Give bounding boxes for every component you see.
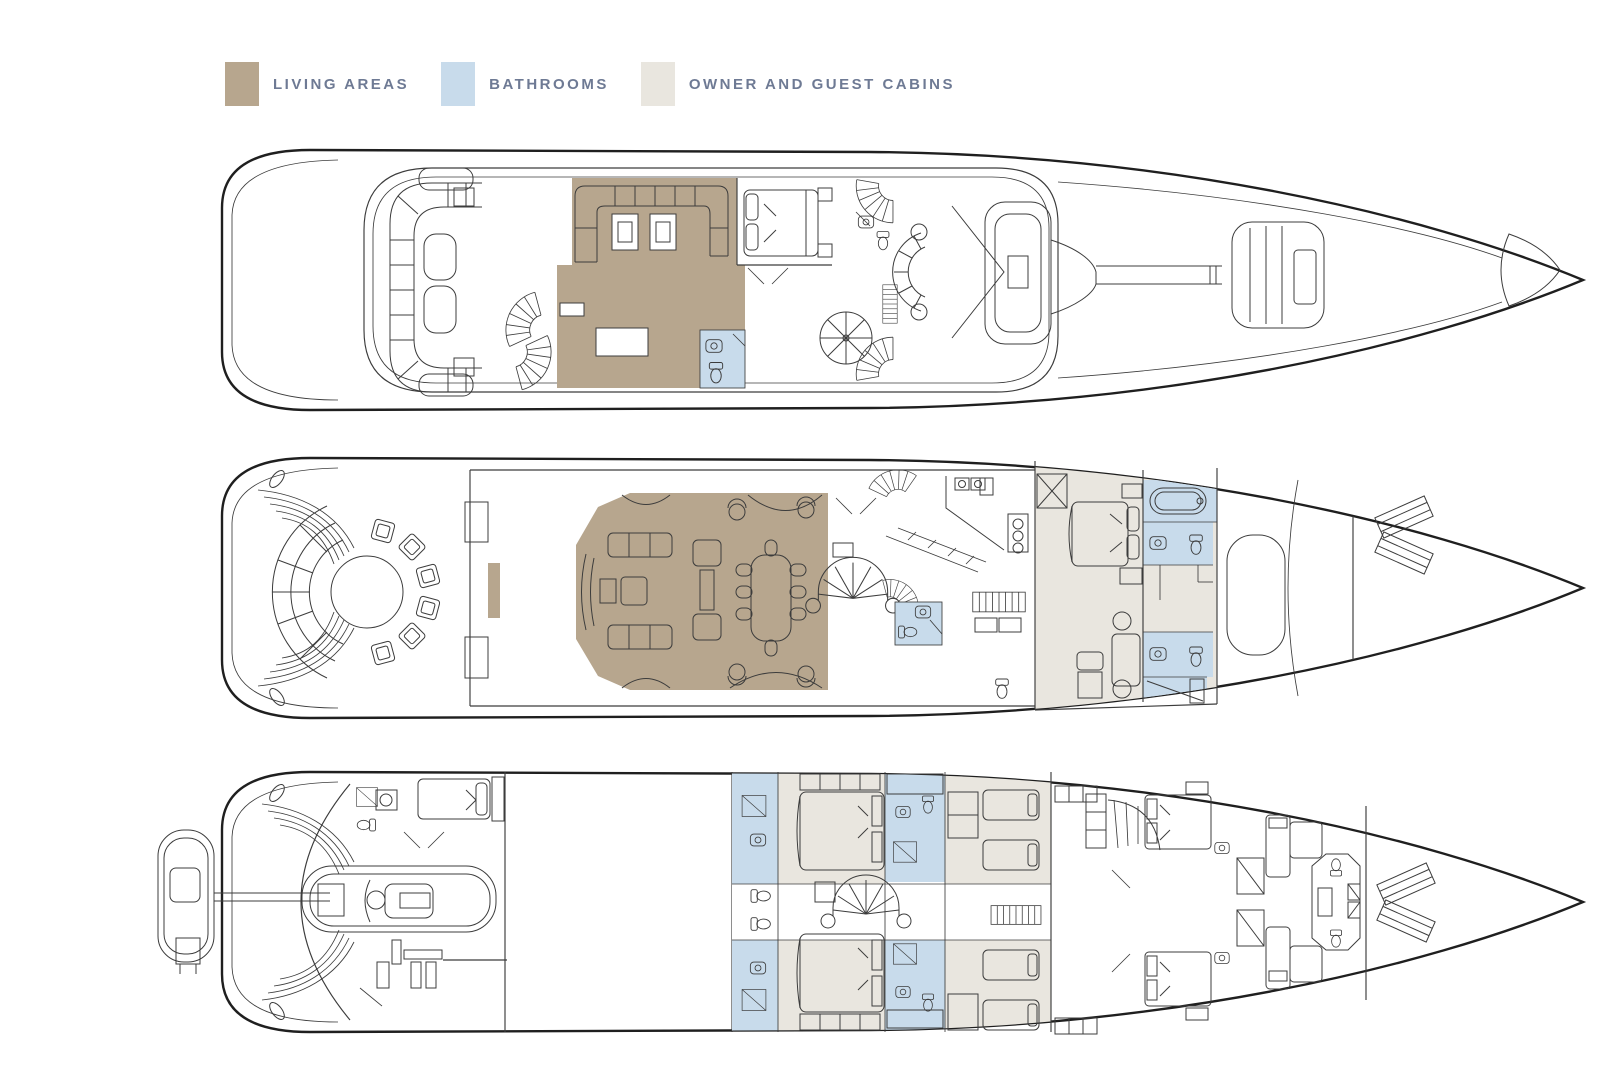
lower-deck-plan: [158, 772, 1583, 1034]
helm-seat: [911, 304, 927, 320]
main-stairs: [973, 592, 1025, 612]
toilet-icon: [1330, 930, 1341, 947]
windshield: [952, 206, 1004, 338]
shower-icon: [356, 788, 377, 807]
diagonal-stairs: [886, 528, 986, 572]
yacht-deck-plans-page: LIVING AREAS BATHROOMS OWNER AND GUEST C…: [0, 0, 1624, 1068]
cleat-icon: [267, 468, 287, 490]
helm-seat: [911, 224, 927, 240]
galley: [946, 476, 1028, 553]
bow-bulkhead-curve: [1288, 480, 1298, 696]
straight-stairs: [883, 285, 897, 323]
crew-bunk: [1145, 795, 1211, 849]
foredeck-walkway: [1051, 240, 1222, 314]
stern-sweep-stairs: [262, 804, 354, 1000]
owner-bath-zone: [1143, 522, 1213, 565]
cleat-icon: [267, 782, 287, 804]
crew-bunk: [1145, 952, 1211, 1006]
crew-quarters: [1055, 782, 1366, 1034]
aft-stair-fan-lower: [508, 329, 560, 396]
bow-sun-pad: [1377, 900, 1435, 942]
garage-transom-curve: [301, 784, 350, 1020]
toilet-icon: [357, 819, 375, 831]
crew-bed: [418, 779, 490, 819]
sun-deck-plan: [222, 150, 1583, 410]
main-deck-hull: [222, 458, 1583, 718]
tender-boat: [158, 830, 214, 974]
dining-chair: [371, 519, 395, 543]
bow-pad: [1501, 234, 1560, 306]
owner-bath2-zone: [1143, 632, 1213, 677]
cleat-icon: [267, 1000, 287, 1022]
aft-dining: [272, 506, 440, 678]
dining-chair: [398, 622, 426, 650]
round-dining-table: [331, 556, 403, 628]
dining-chair: [398, 533, 426, 561]
dining-chair: [416, 564, 440, 588]
guest-bath-zone-top: [885, 772, 945, 882]
aft-seating-bench: [390, 183, 482, 392]
stair-landing: [833, 543, 853, 557]
workshop: [360, 940, 507, 1006]
cleat-icon: [267, 686, 287, 708]
toilet-icon: [996, 679, 1009, 698]
helm-console: [893, 206, 1004, 338]
bow-locker: [1227, 535, 1285, 655]
radar-mast: [985, 202, 1051, 344]
sun-deck-bathroom: [700, 330, 745, 388]
bow-sun-pad: [1377, 863, 1435, 905]
day-head: [856, 212, 889, 250]
deck-plans-drawing: [0, 0, 1624, 1068]
sun-deck-hull: [222, 150, 1583, 410]
deck-locker: [465, 637, 488, 678]
aft-stair-fan-upper: [497, 286, 549, 353]
davit-crane: [214, 884, 344, 916]
stern-inner-line: [232, 782, 338, 1022]
stern-inner-line: [232, 468, 338, 708]
spiral-staircase-icon: [820, 312, 872, 364]
deck-locker: [465, 502, 488, 542]
salon-step: [488, 563, 500, 618]
toilet-icon: [1330, 859, 1341, 876]
stove: [1008, 514, 1028, 552]
dining-chair: [416, 596, 440, 620]
sun-deck-cabin: [737, 178, 832, 284]
bow-seating-module: [1232, 222, 1324, 328]
stair-fan-forward-port: [847, 170, 904, 231]
day-head-bathroom: [895, 602, 942, 645]
sink-icon: [1215, 842, 1229, 853]
toilet-icon: [877, 232, 889, 250]
crew-cabin-aft: [356, 777, 504, 848]
sink-icon: [1215, 952, 1229, 963]
tender-garage: [302, 866, 496, 932]
stern-platform-line: [232, 160, 338, 400]
main-deck-plan: [222, 458, 1583, 718]
dining-chair: [371, 641, 395, 665]
